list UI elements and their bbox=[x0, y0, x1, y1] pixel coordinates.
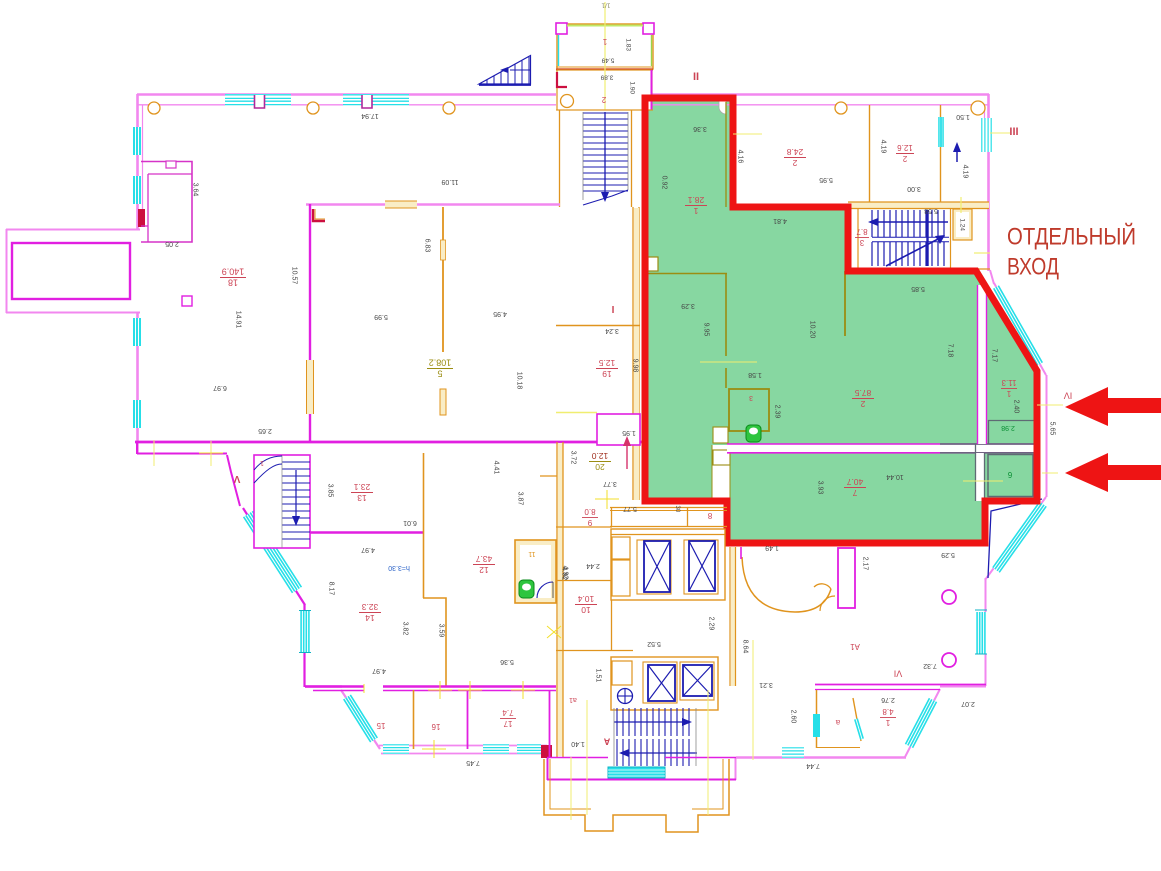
svg-text:8.64: 8.64 bbox=[741, 640, 748, 654]
svg-text:1.95: 1.95 bbox=[622, 429, 636, 436]
svg-text:3.82: 3.82 bbox=[401, 622, 408, 636]
svg-text:3.89: 3.89 bbox=[600, 73, 613, 80]
svg-text:2.65: 2.65 bbox=[258, 427, 272, 434]
svg-text:4.81: 4.81 bbox=[773, 217, 787, 224]
svg-text:40.7: 40.7 bbox=[846, 477, 863, 487]
svg-text:13: 13 bbox=[357, 493, 367, 503]
svg-text:3: 3 bbox=[859, 238, 864, 247]
svg-text:5: 5 bbox=[437, 369, 442, 379]
svg-text:43.7: 43.7 bbox=[475, 554, 492, 564]
svg-text:7.32: 7.32 bbox=[923, 662, 937, 669]
svg-text:12.0: 12.0 bbox=[591, 451, 608, 461]
svg-text:16: 16 bbox=[431, 722, 440, 731]
svg-text:3.77: 3.77 bbox=[603, 480, 617, 487]
svg-text:8.17: 8.17 bbox=[327, 582, 334, 596]
svg-text:2: 2 bbox=[860, 399, 865, 409]
svg-text:2.17: 2.17 bbox=[861, 557, 868, 571]
svg-text:ОТДЕЛЬНЫЙ: ОТДЕЛЬНЫЙ bbox=[1007, 223, 1136, 251]
svg-text:2.60: 2.60 bbox=[789, 710, 796, 724]
svg-text:h=3.30: h=3.30 bbox=[388, 564, 410, 571]
svg-text:1.58: 1.58 bbox=[748, 371, 762, 378]
svg-text:А1: А1 bbox=[850, 642, 860, 651]
svg-text:8.7: 8.7 bbox=[856, 227, 868, 236]
svg-text:а1: а1 bbox=[569, 696, 577, 703]
svg-text:а: а bbox=[835, 718, 840, 727]
svg-text:1.24: 1.24 bbox=[959, 218, 966, 231]
svg-text:1: 1 bbox=[693, 206, 698, 216]
svg-text:VI: VI bbox=[894, 669, 903, 679]
svg-text:1.90: 1.90 bbox=[629, 81, 636, 94]
svg-text:3.85: 3.85 bbox=[326, 484, 333, 498]
svg-text:3.36: 3.36 bbox=[693, 125, 707, 132]
svg-text:12.5: 12.5 bbox=[598, 358, 615, 368]
svg-text:5.49: 5.49 bbox=[601, 56, 614, 63]
svg-text:87.5: 87.5 bbox=[854, 388, 871, 398]
svg-text:2.44: 2.44 bbox=[586, 562, 600, 569]
svg-text:5.99: 5.99 bbox=[374, 313, 388, 320]
svg-text:7: 7 bbox=[852, 488, 857, 498]
svg-text:5.58: 5.58 bbox=[924, 207, 938, 214]
svg-text:10.18: 10.18 bbox=[515, 372, 522, 390]
svg-text:8: 8 bbox=[707, 511, 712, 520]
svg-text:10.20: 10.20 bbox=[808, 321, 815, 339]
svg-text:1: 1 bbox=[602, 37, 607, 46]
svg-text:III: III bbox=[1009, 126, 1018, 138]
svg-text:4.92: 4.92 bbox=[560, 567, 567, 581]
svg-text:10.44: 10.44 bbox=[886, 473, 904, 480]
svg-text:14: 14 bbox=[365, 613, 375, 623]
svg-text:II: II bbox=[693, 71, 699, 83]
svg-text:3.21: 3.21 bbox=[759, 681, 773, 688]
svg-text:7.4: 7.4 bbox=[502, 708, 514, 717]
svg-text:2.05: 2.05 bbox=[165, 240, 179, 247]
svg-text:1.50: 1.50 bbox=[956, 113, 970, 120]
svg-text:12.6: 12.6 bbox=[897, 143, 913, 152]
svg-text:5.95: 5.95 bbox=[819, 176, 833, 183]
svg-text:1.51: 1.51 bbox=[594, 669, 601, 683]
svg-text:108.2: 108.2 bbox=[429, 358, 452, 368]
svg-text:6: 6 bbox=[1007, 470, 1012, 479]
svg-text:11.09: 11.09 bbox=[441, 178, 458, 185]
svg-text:1: 1 bbox=[260, 459, 264, 466]
svg-text:9.98: 9.98 bbox=[631, 359, 638, 373]
svg-text:5.77: 5.77 bbox=[623, 505, 637, 512]
svg-text:3.00: 3.00 bbox=[907, 185, 921, 192]
svg-text:3.29: 3.29 bbox=[681, 302, 695, 309]
svg-text:28.1: 28.1 bbox=[687, 195, 704, 205]
svg-text:5.65: 5.65 bbox=[1048, 422, 1055, 436]
svg-text:9.95: 9.95 bbox=[702, 323, 709, 337]
svg-text:3.93: 3.93 bbox=[816, 481, 823, 495]
svg-text:I: I bbox=[612, 305, 615, 316]
svg-text:5.85: 5.85 bbox=[911, 285, 925, 292]
svg-text:10: 10 bbox=[581, 605, 591, 615]
svg-text:2.07: 2.07 bbox=[961, 700, 975, 707]
svg-text:2: 2 bbox=[792, 158, 797, 168]
svg-text:20: 20 bbox=[595, 462, 605, 472]
svg-text:24.8: 24.8 bbox=[786, 147, 803, 157]
svg-text:11: 11 bbox=[528, 550, 535, 557]
svg-text:11.3: 11.3 bbox=[1001, 378, 1017, 387]
svg-text:5.29: 5.29 bbox=[941, 551, 955, 558]
svg-text:4.97: 4.97 bbox=[361, 546, 375, 553]
svg-text:7.18: 7.18 bbox=[946, 344, 953, 358]
svg-text:1/1: 1/1 bbox=[601, 1, 610, 8]
svg-text:4.41: 4.41 bbox=[492, 461, 499, 475]
svg-text:3.64: 3.64 bbox=[191, 183, 198, 197]
svg-text:32.3: 32.3 bbox=[361, 602, 378, 612]
svg-text:30: 30 bbox=[674, 505, 680, 512]
svg-text:15: 15 bbox=[376, 721, 385, 730]
svg-text:3.24: 3.24 bbox=[605, 327, 619, 334]
svg-text:А: А bbox=[603, 737, 610, 747]
svg-text:4.19: 4.19 bbox=[879, 140, 886, 154]
svg-text:1: 1 bbox=[885, 718, 890, 727]
svg-text:10.4: 10.4 bbox=[577, 594, 594, 604]
svg-text:7.17: 7.17 bbox=[990, 349, 997, 363]
svg-text:IV: IV bbox=[1064, 391, 1073, 401]
svg-text:1.49: 1.49 bbox=[765, 544, 779, 551]
svg-text:1.83: 1.83 bbox=[625, 38, 632, 51]
svg-text:4.19: 4.19 bbox=[961, 165, 968, 179]
svg-text:2: 2 bbox=[601, 95, 606, 104]
svg-text:7.44: 7.44 bbox=[806, 762, 820, 769]
svg-text:6.83: 6.83 bbox=[423, 239, 430, 253]
svg-text:4.95: 4.95 bbox=[493, 310, 507, 317]
svg-text:2.39: 2.39 bbox=[773, 405, 780, 419]
svg-text:0.92: 0.92 bbox=[660, 176, 667, 190]
svg-text:5.36: 5.36 bbox=[500, 658, 514, 665]
svg-text:9: 9 bbox=[587, 518, 592, 527]
svg-text:14.91: 14.91 bbox=[234, 311, 241, 329]
svg-text:6.97: 6.97 bbox=[213, 384, 227, 391]
svg-text:140.9: 140.9 bbox=[222, 267, 245, 277]
svg-text:3: 3 bbox=[749, 394, 753, 401]
svg-text:10.57: 10.57 bbox=[290, 267, 297, 285]
svg-text:17.94: 17.94 bbox=[361, 112, 379, 119]
svg-text:2.98: 2.98 bbox=[1001, 424, 1015, 431]
svg-text:2.40: 2.40 bbox=[1012, 400, 1019, 414]
svg-text:2: 2 bbox=[902, 154, 907, 163]
svg-text:5.52: 5.52 bbox=[647, 640, 661, 647]
svg-text:3.59: 3.59 bbox=[437, 624, 444, 638]
svg-text:2.29: 2.29 bbox=[707, 617, 714, 631]
svg-text:2.76: 2.76 bbox=[881, 696, 895, 703]
svg-text:V: V bbox=[233, 473, 240, 484]
svg-text:1: 1 bbox=[1006, 389, 1011, 398]
svg-text:7.45: 7.45 bbox=[466, 759, 480, 766]
svg-text:12: 12 bbox=[479, 565, 489, 575]
svg-text:3.72: 3.72 bbox=[569, 451, 576, 465]
svg-text:6.01: 6.01 bbox=[403, 519, 417, 526]
svg-text:18: 18 bbox=[228, 278, 238, 288]
svg-text:1.40: 1.40 bbox=[571, 740, 585, 747]
svg-text:4.16: 4.16 bbox=[736, 150, 743, 164]
svg-text:8.0: 8.0 bbox=[584, 507, 596, 516]
svg-text:17: 17 bbox=[503, 719, 512, 728]
svg-text:ВХОД: ВХОД bbox=[1007, 254, 1059, 281]
svg-text:19: 19 bbox=[602, 369, 612, 379]
svg-text:4.97: 4.97 bbox=[372, 667, 386, 674]
svg-text:23.1: 23.1 bbox=[353, 482, 370, 492]
svg-text:3.87: 3.87 bbox=[516, 492, 523, 506]
svg-text:4.8: 4.8 bbox=[882, 707, 894, 716]
